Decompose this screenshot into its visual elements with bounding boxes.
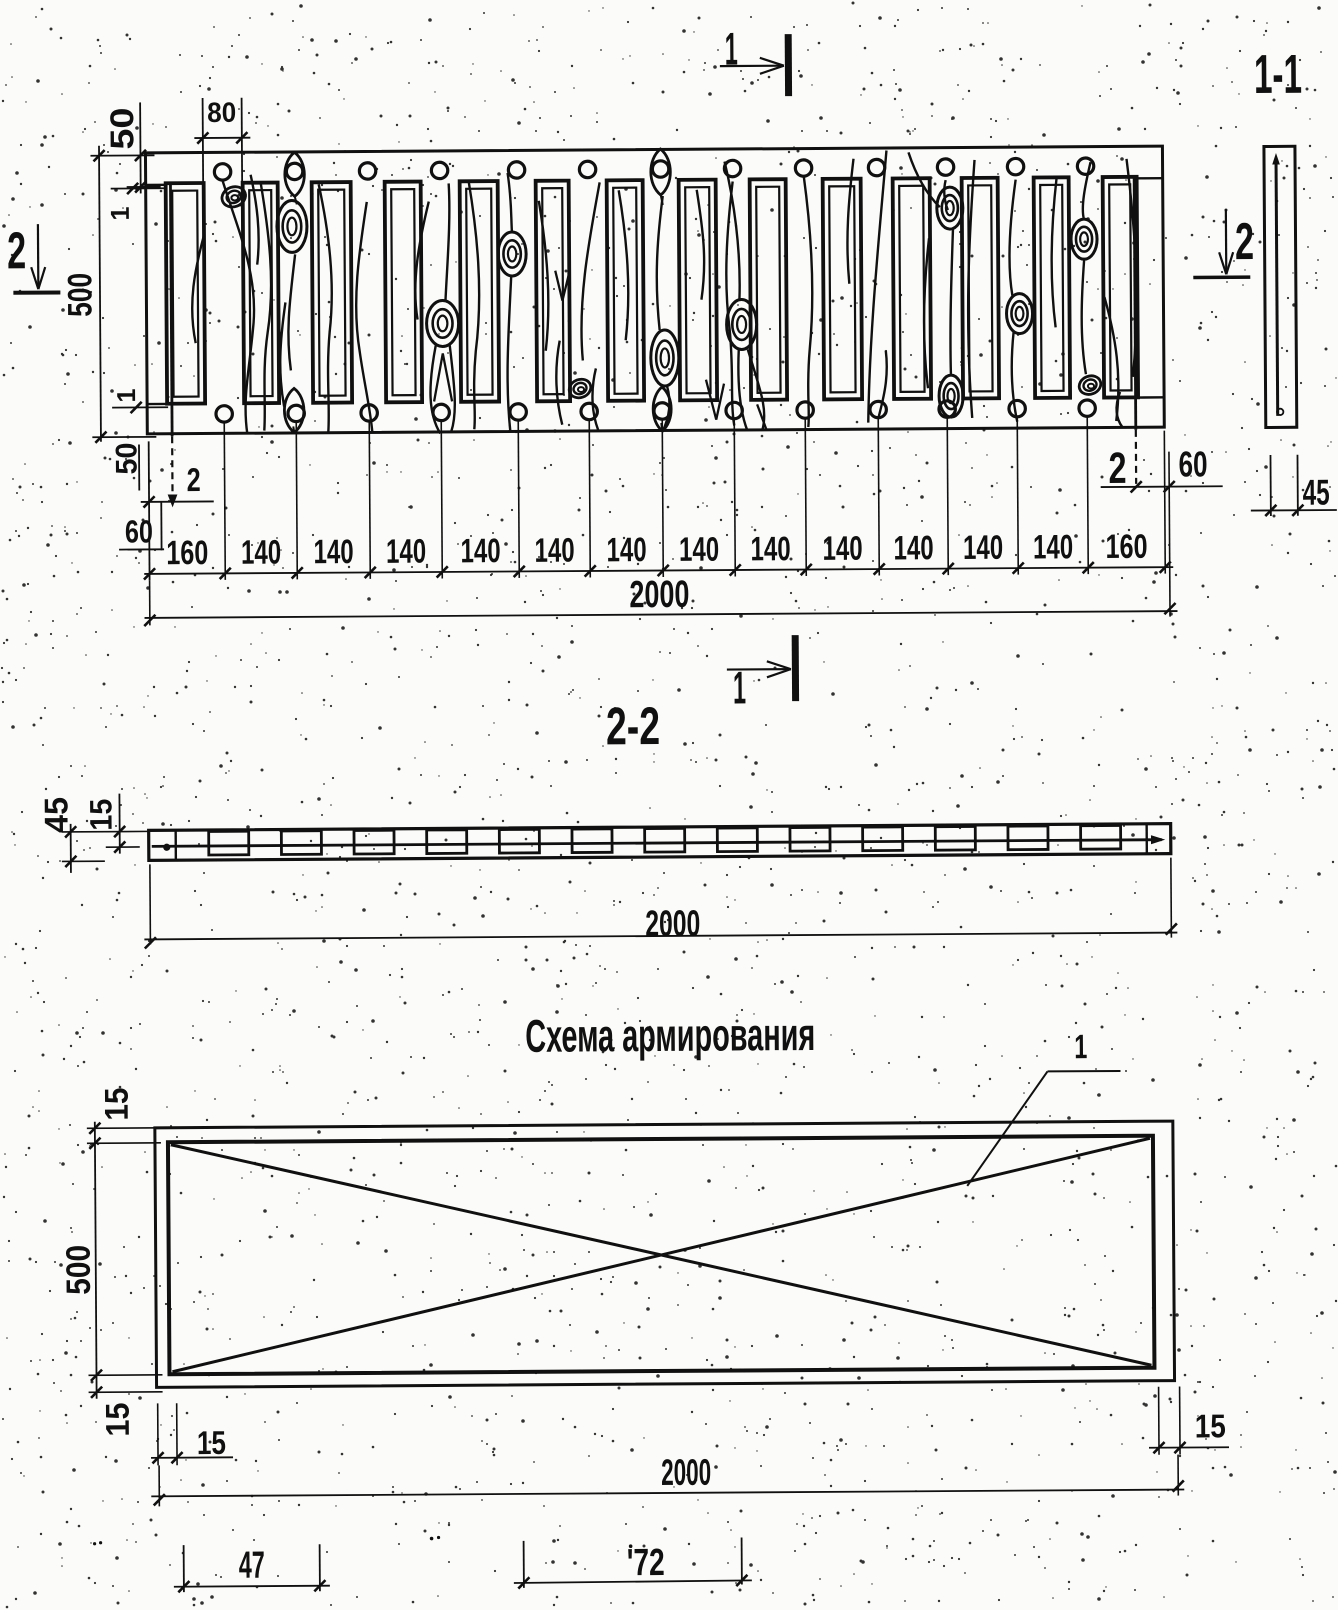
svg-text:47: 47	[239, 1545, 265, 1587]
svg-text:140: 140	[1033, 528, 1073, 566]
svg-text:2: 2	[7, 222, 26, 280]
svg-text:2-2: 2-2	[606, 697, 660, 756]
svg-text:140: 140	[313, 533, 353, 571]
svg-text:2000: 2000	[645, 903, 700, 944]
svg-text:140: 140	[241, 534, 281, 572]
svg-text:500: 500	[60, 1245, 98, 1295]
svg-text:1: 1	[733, 661, 746, 713]
svg-text:45: 45	[37, 797, 74, 833]
svg-text:45: 45	[1303, 472, 1330, 513]
svg-text:60: 60	[125, 513, 153, 549]
svg-text:140: 140	[822, 530, 862, 568]
svg-text:2000: 2000	[629, 574, 689, 616]
svg-text:15: 15	[99, 1402, 136, 1436]
svg-text:1-1: 1-1	[1254, 43, 1302, 105]
svg-text:2000: 2000	[661, 1452, 711, 1493]
svg-text:Схема армирования: Схема армирования	[525, 1008, 815, 1062]
svg-text:2: 2	[1235, 213, 1254, 271]
svg-text:2: 2	[1108, 444, 1126, 493]
svg-text:60: 60	[1178, 443, 1207, 484]
svg-text:160: 160	[1105, 528, 1147, 566]
svg-text:50: 50	[110, 442, 143, 474]
svg-text:140: 140	[750, 530, 790, 568]
svg-text:2: 2	[186, 461, 200, 498]
svg-text:15: 15	[1195, 1407, 1226, 1444]
svg-text:1: 1	[111, 388, 141, 402]
svg-text:140: 140	[460, 532, 500, 570]
svg-text:50: 50	[103, 107, 140, 149]
svg-text:160: 160	[166, 534, 208, 572]
svg-text:15: 15	[197, 1424, 226, 1461]
svg-text:1: 1	[105, 206, 135, 220]
svg-text:1: 1	[1074, 1028, 1087, 1066]
svg-text:15: 15	[98, 1087, 135, 1120]
svg-text:140: 140	[963, 529, 1003, 567]
svg-text:'72: '72	[627, 1542, 665, 1584]
svg-text:140: 140	[606, 531, 646, 569]
svg-text:140: 140	[679, 531, 719, 569]
svg-text:140: 140	[534, 532, 574, 570]
svg-text:1: 1	[725, 22, 738, 74]
svg-text:15: 15	[83, 799, 118, 831]
svg-text:80: 80	[207, 97, 236, 128]
svg-text:140: 140	[386, 533, 426, 571]
svg-text:500: 500	[61, 273, 99, 317]
svg-text:140: 140	[893, 529, 933, 567]
